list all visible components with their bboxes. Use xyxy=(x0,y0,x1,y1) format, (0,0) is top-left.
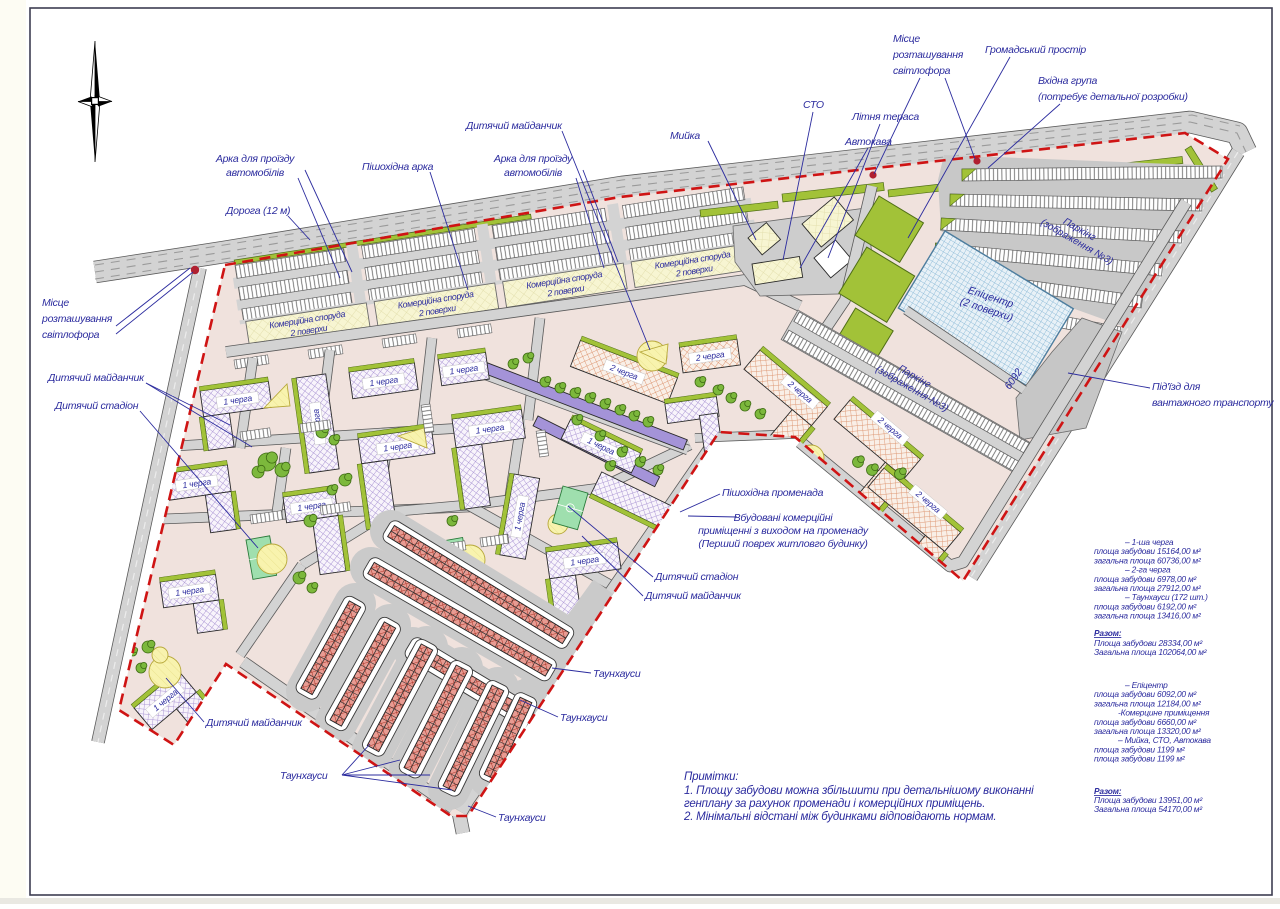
svg-text:генплану за рахунок променади: генплану за рахунок променади і комерцій… xyxy=(684,798,985,810)
svg-text:площа забудови 1199 м²: площа забудови 1199 м² xyxy=(1094,754,1186,764)
svg-text:Дитячий майданчик: Дитячий майданчик xyxy=(644,590,742,602)
svg-text:2. Мінімальні відстані між буд: 2. Мінімальні відстані між будинками від… xyxy=(683,811,996,823)
svg-text:Разом:: Разом: xyxy=(1094,628,1122,638)
svg-text:Дитячий стадіон: Дитячий стадіон xyxy=(654,571,739,583)
svg-text:автомобілів: автомобілів xyxy=(226,167,285,179)
svg-text:Дитячий стадіон: Дитячий стадіон xyxy=(54,400,139,412)
svg-text:Вбудовані комерційні: Вбудовані комерційні xyxy=(734,512,834,524)
svg-text:(Перший поврех житловго будинк: (Перший поврех житловго будинку) xyxy=(698,538,867,550)
svg-text:Мийка: Мийка xyxy=(670,130,700,142)
svg-text:вантажного транспорту: вантажного транспорту xyxy=(1152,397,1274,409)
svg-text:розташування: розташування xyxy=(41,313,113,325)
svg-text:Примітки:: Примітки: xyxy=(684,771,738,783)
svg-text:Пішохідна арка: Пішохідна арка xyxy=(362,161,434,173)
svg-text:Місце: Місце xyxy=(893,33,920,45)
svg-text:Арка для проїзду: Арка для проїзду xyxy=(215,153,295,165)
svg-text:(потребує детальної розробки): (потребує детальної розробки) xyxy=(1038,91,1188,103)
svg-text:Дитячий майданчик: Дитячий майданчик xyxy=(47,372,145,384)
svg-text:розташування: розташування xyxy=(892,49,964,61)
svg-text:Автокава: Автокава xyxy=(844,136,892,148)
svg-text:Місце: Місце xyxy=(42,297,69,309)
svg-text:Літня тераса: Літня тераса xyxy=(851,111,919,123)
svg-text:автомобілів: автомобілів xyxy=(504,167,563,179)
svg-text:Дорога (12 м): Дорога (12 м) xyxy=(225,205,290,217)
svg-text:Таунхауси: Таунхауси xyxy=(593,668,641,680)
svg-text:Дитячий майданчик: Дитячий майданчик xyxy=(465,120,563,132)
svg-text:Загальна площа 54170,00 м²: Загальна площа 54170,00 м² xyxy=(1094,804,1203,814)
svg-text:Таунхауси: Таунхауси xyxy=(498,812,546,824)
svg-text:Таунхауси: Таунхауси xyxy=(280,770,328,782)
svg-text:Громадський простір: Громадський простір xyxy=(985,44,1086,56)
svg-text:1. Площу забудови можна збільш: 1. Площу забудови можна збільшити при де… xyxy=(684,785,1034,797)
svg-text:Таунхауси: Таунхауси xyxy=(560,712,608,724)
svg-text:Дитячий майданчик: Дитячий майданчик xyxy=(205,717,303,729)
svg-text:загальна площа 13416,00 м²: загальна площа 13416,00 м² xyxy=(1093,611,1202,621)
svg-text:Пішохідна променада: Пішохідна променада xyxy=(722,487,824,499)
svg-text:світлофора: світлофора xyxy=(893,65,951,77)
svg-text:світлофора: світлофора xyxy=(42,329,100,341)
svg-text:Під'їзд для: Під'їзд для xyxy=(1152,381,1201,393)
svg-text:приміщенні з виходом на промен: приміщенні з виходом на променаду xyxy=(698,525,869,537)
svg-text:Вхідна група: Вхідна група xyxy=(1038,75,1098,87)
svg-text:СТО: СТО xyxy=(803,99,824,111)
svg-text:Арка для проїзду: Арка для проїзду xyxy=(493,153,573,165)
svg-text:Загальна площа 102064,00 м²: Загальна площа 102064,00 м² xyxy=(1094,647,1208,657)
